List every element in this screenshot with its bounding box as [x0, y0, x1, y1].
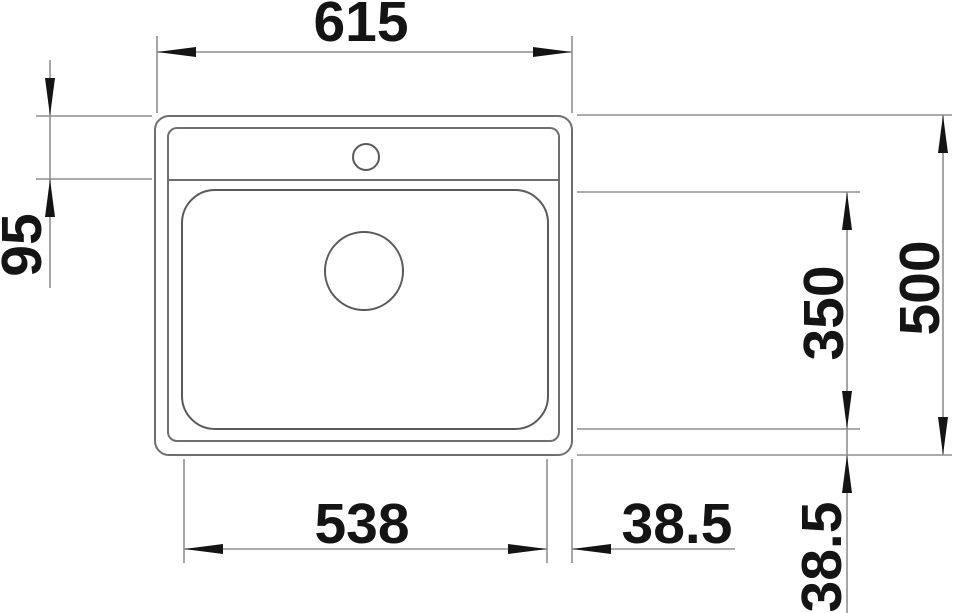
sink-outer-edge [155, 116, 572, 455]
arrowhead-left-icon [184, 544, 223, 554]
arrowhead-up-icon [842, 192, 852, 230]
arrowhead-up-icon [45, 179, 55, 217]
dimension-label: 350 [792, 265, 856, 360]
arrowhead-left-icon [572, 544, 611, 554]
arrowhead-down-icon [938, 417, 948, 455]
arrowhead-up-icon [842, 455, 852, 493]
arrowhead-right-icon [533, 47, 572, 57]
arrowhead-up-icon [938, 115, 948, 153]
dimension-edge-offset-horizontal: 38.5 [572, 459, 735, 563]
arrowhead-left-icon [157, 47, 196, 57]
dimension-label: 95 [0, 213, 54, 276]
faucet-hole [353, 144, 379, 170]
arrowhead-down-icon [45, 78, 55, 116]
dimension-edge-offset-vertical: 38.5 [790, 455, 854, 612]
dimension-label: 615 [313, 0, 408, 54]
dimension-label: 38.5 [622, 492, 733, 556]
dimension-bowl-width: 538 [184, 459, 547, 563]
sink-inner-rim [168, 128, 559, 441]
dimension-overall-depth: 500 [577, 115, 952, 455]
dimension-deck-depth: 95 [0, 60, 152, 288]
dimension-label: 500 [888, 240, 952, 335]
drain-hole [325, 232, 403, 310]
dimension-label: 38.5 [790, 502, 854, 613]
arrowhead-down-icon [842, 391, 852, 429]
dimension-label: 538 [314, 492, 409, 556]
dimension-overall-width: 615 [157, 0, 572, 113]
sink-outline-group [155, 116, 572, 455]
sink-dimension-drawing: 615 95 350 500 [0, 0, 960, 613]
arrowhead-right-icon [508, 544, 547, 554]
technical-drawing-canvas: 615 95 350 500 [0, 0, 960, 613]
